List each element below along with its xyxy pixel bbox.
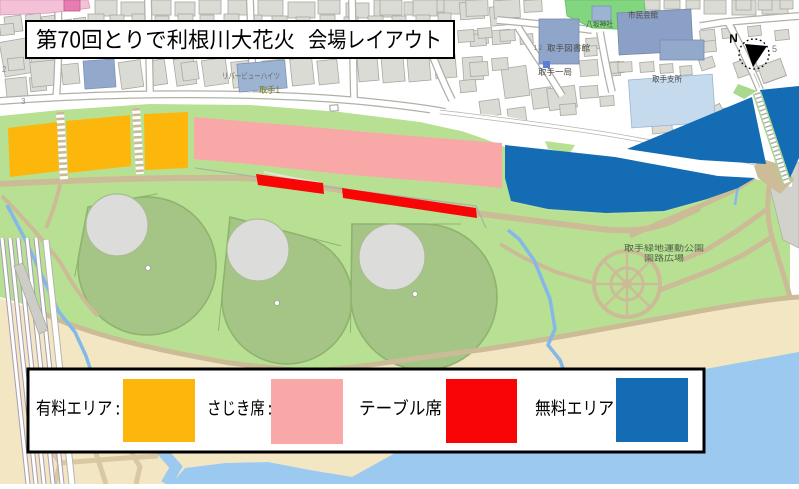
svg-text:3: 3 [21, 97, 26, 106]
svg-text:5: 5 [772, 44, 777, 54]
svg-text:2: 2 [2, 65, 7, 74]
